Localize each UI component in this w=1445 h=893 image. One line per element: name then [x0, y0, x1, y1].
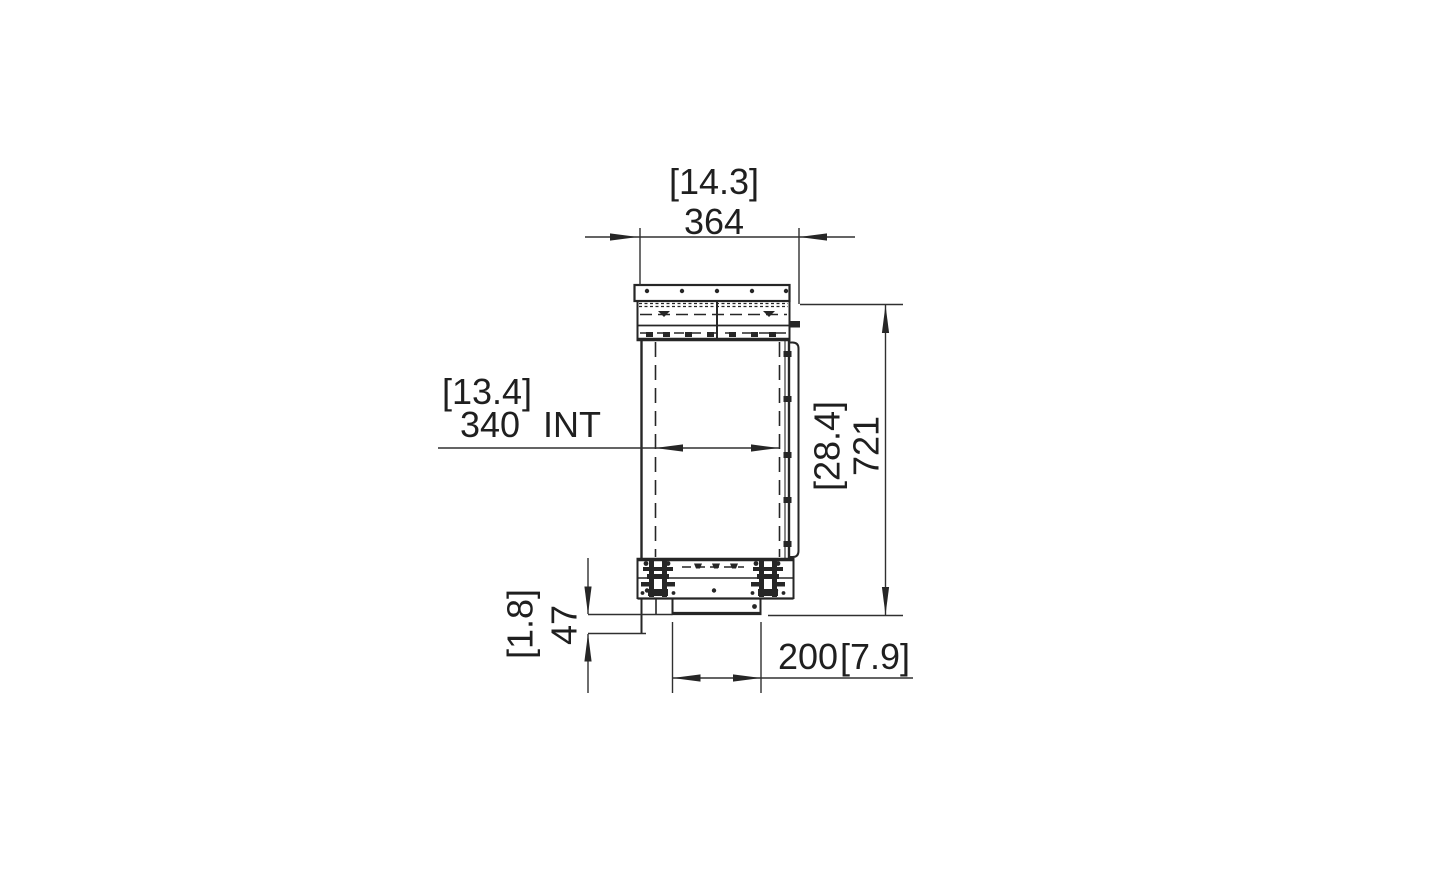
clip-mark: [730, 564, 738, 569]
screw-dot: [712, 588, 716, 592]
arrowhead: [584, 634, 591, 662]
main-box: [642, 339, 799, 560]
burner-tray: [637, 301, 801, 340]
screw-dot: [750, 289, 754, 293]
arrowhead: [673, 674, 701, 681]
wall-mark: [784, 497, 792, 503]
dim-overall-height-imperial: [28.4]: [807, 401, 848, 491]
screw-dot: [784, 289, 788, 293]
mounting-bracket-hardware-right: [751, 561, 786, 597]
screw-dot: [645, 289, 649, 293]
dim-internal-width-label: INT: [543, 404, 601, 445]
dim-base-height-metric: 47: [544, 605, 585, 645]
dim-internal-width-metric: 340: [460, 404, 520, 445]
arrowhead: [584, 587, 591, 615]
pivot-dot: [752, 604, 757, 609]
bottom-protrusion: [642, 599, 762, 634]
dim-overall-height-metric: 721: [846, 416, 887, 476]
wall-mark: [784, 541, 792, 547]
arrowhead: [799, 233, 827, 240]
clip-mark: [694, 564, 702, 569]
arrowhead: [751, 444, 779, 451]
dim-base-depth: 200 [7.9]: [673, 622, 914, 693]
arrowhead: [655, 444, 683, 451]
arrowhead: [882, 587, 889, 615]
base-flange: [637, 559, 795, 599]
dim-base-depth-imperial: [7.9]: [840, 636, 910, 677]
firebox-side-view: [635, 285, 801, 634]
clip-mark: [712, 564, 720, 569]
wall-mark: [784, 351, 792, 357]
dim-base-depth-metric: 200: [778, 636, 838, 677]
back-panel: [789, 343, 799, 558]
screw-dot: [680, 289, 684, 293]
fastener-tabs: [646, 332, 776, 337]
screw-dot: [715, 289, 719, 293]
arrowhead: [882, 305, 889, 333]
wall-mark: [784, 396, 792, 402]
dim-internal-width: [13.4] 340 INT: [438, 371, 779, 452]
dim-base-height-imperial: [1.8]: [500, 589, 541, 659]
technical-drawing: [14.3] 364 [13.4] 340 INT [28.4] 721 [1.…: [0, 0, 1445, 893]
dim-overall-width-imperial: [14.3]: [669, 161, 759, 202]
dim-overall-width: [14.3] 364: [585, 161, 855, 304]
dim-overall-width-metric: 364: [684, 201, 744, 242]
top-mounting-rail: [635, 285, 790, 301]
arrowhead: [610, 233, 638, 240]
drawing-page: [14.3] 364 [13.4] 340 INT [28.4] 721 [1.…: [0, 0, 1445, 893]
wall-mark: [784, 452, 792, 458]
side-tab: [789, 321, 800, 328]
arrowhead: [733, 674, 761, 681]
